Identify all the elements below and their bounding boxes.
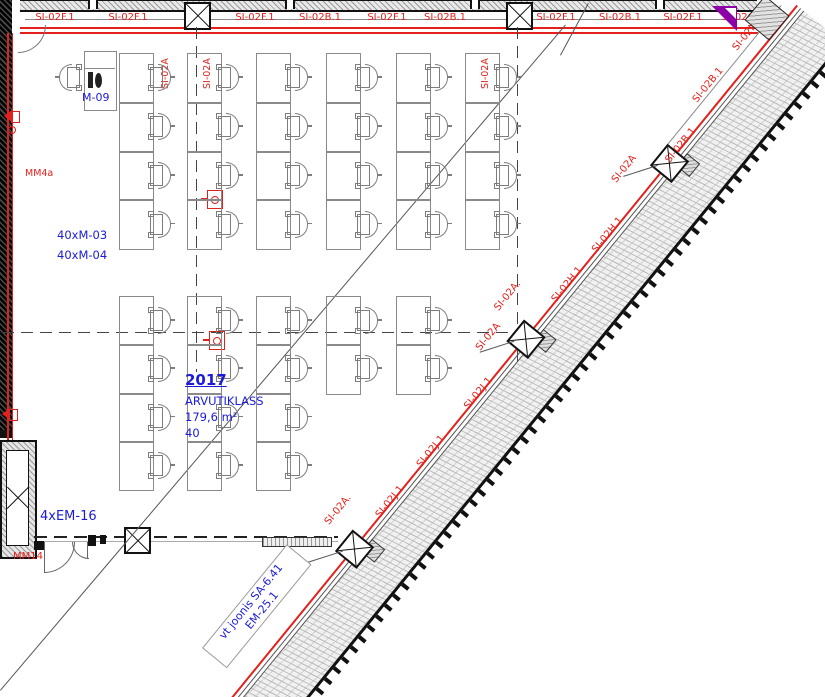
desk — [256, 344, 291, 394]
chair-icon — [287, 307, 309, 333]
chair-icon — [58, 64, 80, 90]
wall-batten — [486, 478, 495, 486]
shaft-xbox — [6, 450, 29, 546]
desk-count-label: 40xM-03 — [57, 228, 107, 242]
wall-batten — [742, 165, 751, 173]
wall-batten — [426, 552, 435, 560]
wall-batten — [597, 342, 606, 350]
wall-jamb — [34, 541, 44, 550]
chair-icon — [496, 211, 518, 237]
chair-icon — [150, 162, 172, 188]
wall-batten — [819, 71, 825, 79]
chair-icon — [150, 404, 172, 430]
wall-segment-label: SI-02B.1 — [286, 12, 354, 23]
chair-icon — [357, 355, 379, 381]
wall-jamb — [100, 535, 106, 544]
cable-line-left-1 — [7, 33, 9, 443]
desk — [465, 53, 500, 104]
wall-batten — [751, 154, 760, 162]
desk — [326, 53, 361, 104]
desk — [326, 296, 361, 346]
wall-batten — [469, 499, 478, 507]
chair-icon — [287, 452, 309, 478]
chair-icon — [427, 355, 449, 381]
wall-batten — [674, 248, 683, 256]
wall-joint — [470, 0, 480, 9]
desk — [187, 199, 222, 250]
leader-line — [308, 551, 343, 563]
chair-icon — [218, 162, 240, 188]
desk — [326, 102, 361, 153]
room-number: 2017 — [185, 371, 227, 389]
chair-icon — [427, 211, 449, 237]
wall-batten — [768, 133, 777, 141]
wall-batten — [520, 437, 529, 445]
wall-batten — [546, 405, 555, 413]
wall-batten — [315, 688, 324, 696]
speaker-icon — [4, 108, 20, 124]
cable-line-top-2 — [20, 32, 758, 34]
door-leaf — [44, 542, 45, 573]
column-label: SI-02A. — [312, 479, 365, 540]
wall-batten — [580, 363, 589, 371]
wall-batten — [682, 238, 691, 246]
chair-icon — [150, 307, 172, 333]
wall-joint — [655, 0, 665, 9]
desk — [119, 393, 154, 443]
floor-plan-canvas: SI-02F.1SI-02F.1SI-02F.1SI-02B.1SI-02F.1… — [0, 0, 825, 697]
wall-batten — [657, 269, 666, 277]
chair-icon — [427, 64, 449, 90]
wall-batten — [392, 593, 401, 601]
chair-icon — [287, 162, 309, 188]
monitor-icon — [95, 73, 102, 88]
chair-icon — [427, 113, 449, 139]
door-swing-arc — [44, 542, 75, 573]
desk — [119, 296, 154, 346]
chair-icon — [150, 452, 172, 478]
wall-batten — [324, 677, 333, 685]
wall-batten — [452, 520, 461, 528]
wall-segment-label: SI-02F.1 — [21, 12, 89, 23]
wall-batten — [691, 227, 700, 235]
wall-batten — [665, 259, 674, 267]
wall-jamb — [88, 535, 96, 546]
desk — [187, 296, 222, 346]
wall-batten — [640, 290, 649, 298]
wall-batten — [384, 604, 393, 612]
chair-icon — [218, 113, 240, 139]
chair-icon — [218, 452, 240, 478]
wall-batten — [734, 175, 743, 183]
chair-icon — [357, 113, 379, 139]
desk — [119, 102, 154, 153]
wall-batten — [401, 583, 410, 591]
wall-batten — [631, 301, 640, 309]
chair-icon — [287, 355, 309, 381]
chair-icon — [287, 404, 309, 430]
chair-icon — [357, 162, 379, 188]
wall-batten — [725, 186, 734, 194]
column-icon — [506, 2, 533, 30]
wall-segment-label: SI-02F.1 — [94, 12, 162, 23]
wall-batten — [588, 353, 597, 361]
desk — [465, 151, 500, 202]
desk — [465, 102, 500, 153]
desk — [326, 344, 361, 394]
shaft-label: MM14 — [13, 551, 43, 562]
wall-batten — [409, 573, 418, 581]
wall-joint — [88, 0, 98, 9]
chair-icon — [287, 64, 309, 90]
chair-icon — [357, 64, 379, 90]
teacher-station-label: M-09 — [82, 91, 109, 104]
chair-icon — [150, 355, 172, 381]
desk — [256, 53, 291, 104]
desk — [256, 441, 291, 491]
chair-icon — [150, 113, 172, 139]
cable-line-top-1 — [20, 27, 758, 29]
wall-batten — [708, 207, 717, 215]
wall-batten — [785, 112, 794, 120]
wall-batten — [443, 531, 452, 539]
diagonal-wall: SI-02J.1SI-02J.1SI-02J.1SI-02H.1.SI-02H.… — [221, 0, 825, 697]
wall-batten — [341, 656, 350, 664]
wall-segment-label: SI-02B.1 — [586, 12, 654, 23]
desk — [187, 441, 222, 491]
wall-batten — [495, 468, 504, 476]
chair-icon — [218, 64, 240, 90]
wall-batten — [529, 426, 538, 434]
speaker-icon — [2, 406, 18, 422]
chair-icon — [218, 211, 240, 237]
wall-batten — [512, 447, 521, 455]
desk — [396, 102, 431, 153]
desk — [119, 53, 154, 104]
wall-segment-label: SI-02F.1 — [221, 12, 289, 23]
desk — [326, 199, 361, 250]
wall-batten — [418, 562, 427, 570]
wall-batten — [810, 81, 819, 89]
chair-icon — [287, 211, 309, 237]
desk — [465, 199, 500, 250]
chair-icon — [496, 162, 518, 188]
desk — [396, 53, 431, 104]
chair-icon — [287, 113, 309, 139]
desk — [187, 53, 222, 104]
wall-batten — [375, 614, 384, 622]
desk — [326, 151, 361, 202]
door-swing-arc — [18, 25, 46, 53]
room-name: ARVUTIKLASS — [185, 394, 264, 408]
column-icon — [184, 2, 211, 30]
left-wall-device-label: MM4a — [25, 168, 53, 179]
wall-batten — [571, 374, 580, 382]
chair-icon — [150, 64, 172, 90]
wall-batten — [435, 541, 444, 549]
wall-batten — [614, 322, 623, 330]
wall-segment-label: SI-02B.1 — [411, 12, 479, 23]
chair-count-label: 40xM-04 — [57, 248, 107, 262]
desk — [256, 199, 291, 250]
desk — [187, 102, 222, 153]
desk — [119, 344, 154, 394]
north-arrow-inner — [725, 8, 736, 19]
wall-joint — [285, 0, 295, 9]
chair-icon — [496, 113, 518, 139]
wall-batten — [802, 92, 811, 100]
desk — [119, 151, 154, 202]
wall-batten — [776, 123, 785, 131]
wall-segment-label: SI-02F.1 — [649, 12, 717, 23]
room-area: 179,6 m² — [185, 410, 237, 424]
wall-batten — [366, 625, 375, 633]
desk — [119, 199, 154, 250]
left-wall — [0, 0, 12, 436]
wall-batten — [358, 635, 367, 643]
desk — [119, 441, 154, 491]
chair-icon — [150, 211, 172, 237]
wall-batten — [563, 384, 572, 392]
cable-line-left-2 — [12, 33, 14, 443]
wall-batten — [554, 395, 563, 403]
chair-icon — [496, 64, 518, 90]
cable-line-diagonal — [227, 5, 798, 697]
wall-batten — [332, 667, 341, 675]
desk — [256, 296, 291, 346]
wall-batten — [503, 458, 512, 466]
desk — [396, 151, 431, 202]
desk — [256, 102, 291, 153]
computer-icon — [88, 72, 93, 88]
desk — [396, 344, 431, 394]
chair-icon — [357, 307, 379, 333]
wall-batten — [349, 646, 358, 654]
room-capacity: 40 — [185, 426, 200, 440]
chair-icon — [427, 162, 449, 188]
chair-icon — [427, 307, 449, 333]
wall-batten — [460, 510, 469, 518]
wall-batten — [477, 489, 486, 497]
desk — [396, 296, 431, 346]
teacher-desk-divider — [84, 68, 115, 69]
desk — [256, 151, 291, 202]
wall-batten — [606, 332, 615, 340]
wall-batten — [793, 102, 802, 110]
wall-batten — [759, 144, 768, 152]
wall-batten — [537, 416, 546, 424]
device-circle-icon — [8, 126, 16, 134]
wall-batten — [623, 311, 632, 319]
desk — [396, 199, 431, 250]
shaft-sockets-label: 4xEM-16 — [40, 509, 97, 524]
wall-batten — [699, 217, 708, 225]
top-wall — [20, 0, 757, 12]
chair-icon — [218, 307, 240, 333]
wall-batten — [717, 196, 726, 204]
door-leaf — [87, 542, 88, 559]
chair-icon — [357, 211, 379, 237]
desk — [187, 151, 222, 202]
wall-batten — [648, 280, 657, 288]
